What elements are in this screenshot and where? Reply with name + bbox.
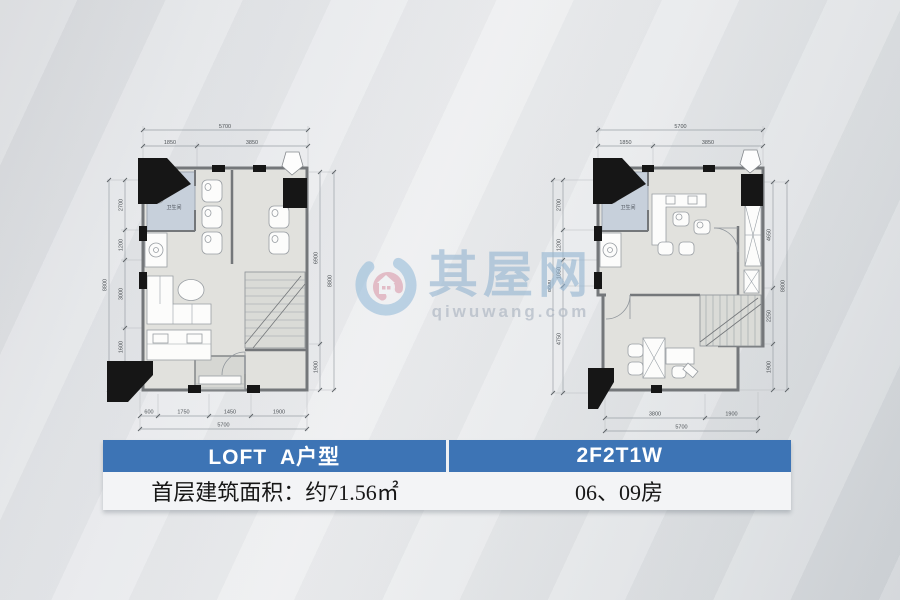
- qiwuwang-logo-icon: [352, 251, 420, 319]
- dim-label: 5700: [217, 423, 229, 429]
- dims-bottom: 600 1750 1450 1900 5700: [138, 410, 309, 432]
- dim-label: 2250: [767, 310, 773, 322]
- dim-label: 1050: [557, 267, 563, 279]
- dim-label: 8800: [328, 275, 334, 287]
- dim-label: 4750: [557, 333, 563, 345]
- dims-left: 2700 1200 1050 4750 8800: [548, 178, 565, 395]
- dim-label: 1850: [164, 140, 176, 146]
- dim-label: 3800: [649, 412, 661, 418]
- dim-label: 5700: [675, 425, 687, 431]
- dim-label: 1200: [557, 239, 563, 251]
- dim-label: 1900: [767, 361, 773, 373]
- unit-body: 卫生间: [588, 150, 763, 409]
- room-label-bathroom: 卫生间: [620, 204, 635, 211]
- dim-label: 8800: [548, 280, 553, 292]
- dim-label: 3850: [246, 140, 258, 146]
- dims-top: 5700 1850 3850: [141, 124, 310, 148]
- staircase: [700, 295, 761, 346]
- dim-label: 8800: [781, 280, 787, 292]
- floorplan-left: 5700 1850 3850 2700 1200 3000 1600 900 8…: [95, 118, 345, 448]
- dim-label: 1900: [273, 410, 285, 416]
- washer-fixture: [600, 233, 621, 267]
- dim-label: 600: [144, 410, 153, 416]
- dim-label: 3850: [702, 140, 714, 146]
- room-label-bathroom: 卫生间: [166, 204, 181, 211]
- dim-label: 1900: [314, 361, 320, 373]
- kitchen-counter: [147, 330, 211, 360]
- floor-area-text: 首层建筑面积：约71.56㎡: [103, 472, 447, 510]
- dim-label: 1900: [725, 412, 737, 418]
- washer-fixture: [145, 233, 167, 267]
- dim-label: 5700: [219, 124, 231, 130]
- plan-code-header: 2F2T1W: [449, 440, 792, 472]
- unit-body: 卫生间: [107, 152, 307, 402]
- spec-table: LOFT A户型 2F2T1W 首层建筑面积：约71.56㎡ 06、09房: [103, 440, 791, 510]
- dims-bottom: 3800 1900 5700: [603, 412, 760, 434]
- dim-label: 8800: [103, 279, 109, 291]
- dims-top: 5700 1850 3850: [596, 124, 765, 148]
- dim-label: 1200: [119, 239, 125, 251]
- balcony-planter: [199, 376, 241, 384]
- staircase: [245, 272, 305, 348]
- dims-left: 2700 1200 3000 1600 900 8800: [103, 178, 128, 392]
- dim-label: 1750: [177, 410, 189, 416]
- round-table: [178, 280, 204, 301]
- dim-label: 1450: [224, 410, 236, 416]
- floorplan-right: 5700 1850 3850 2700 1200 1050 4750 8800 …: [548, 118, 803, 448]
- floorplan-page: 5700 1850 3850 2700 1200 3000 1600 900 8…: [0, 0, 900, 600]
- dim-label: 4650: [767, 229, 773, 241]
- balcony-area: [195, 356, 245, 390]
- dim-label: 6900: [314, 252, 320, 264]
- spec-table-row: 首层建筑面积：约71.56㎡ 06、09房: [103, 472, 791, 510]
- dim-label: 2700: [119, 199, 125, 211]
- dim-label: 2700: [557, 199, 563, 211]
- dim-label: 1600: [119, 341, 125, 353]
- room-numbers-text: 06、09房: [447, 472, 791, 510]
- spec-table-header: LOFT A户型 2F2T1W: [103, 440, 791, 472]
- dims-right: 4650 2250 1900 8800: [767, 180, 790, 392]
- dim-label: 3000: [119, 288, 125, 300]
- dim-label: 1850: [619, 140, 631, 146]
- dims-right: 6900 1900 8800: [314, 170, 337, 392]
- plan-name-header: LOFT A户型: [103, 440, 449, 472]
- dim-label: 5700: [674, 124, 686, 130]
- shaft-lattice: [744, 204, 761, 293]
